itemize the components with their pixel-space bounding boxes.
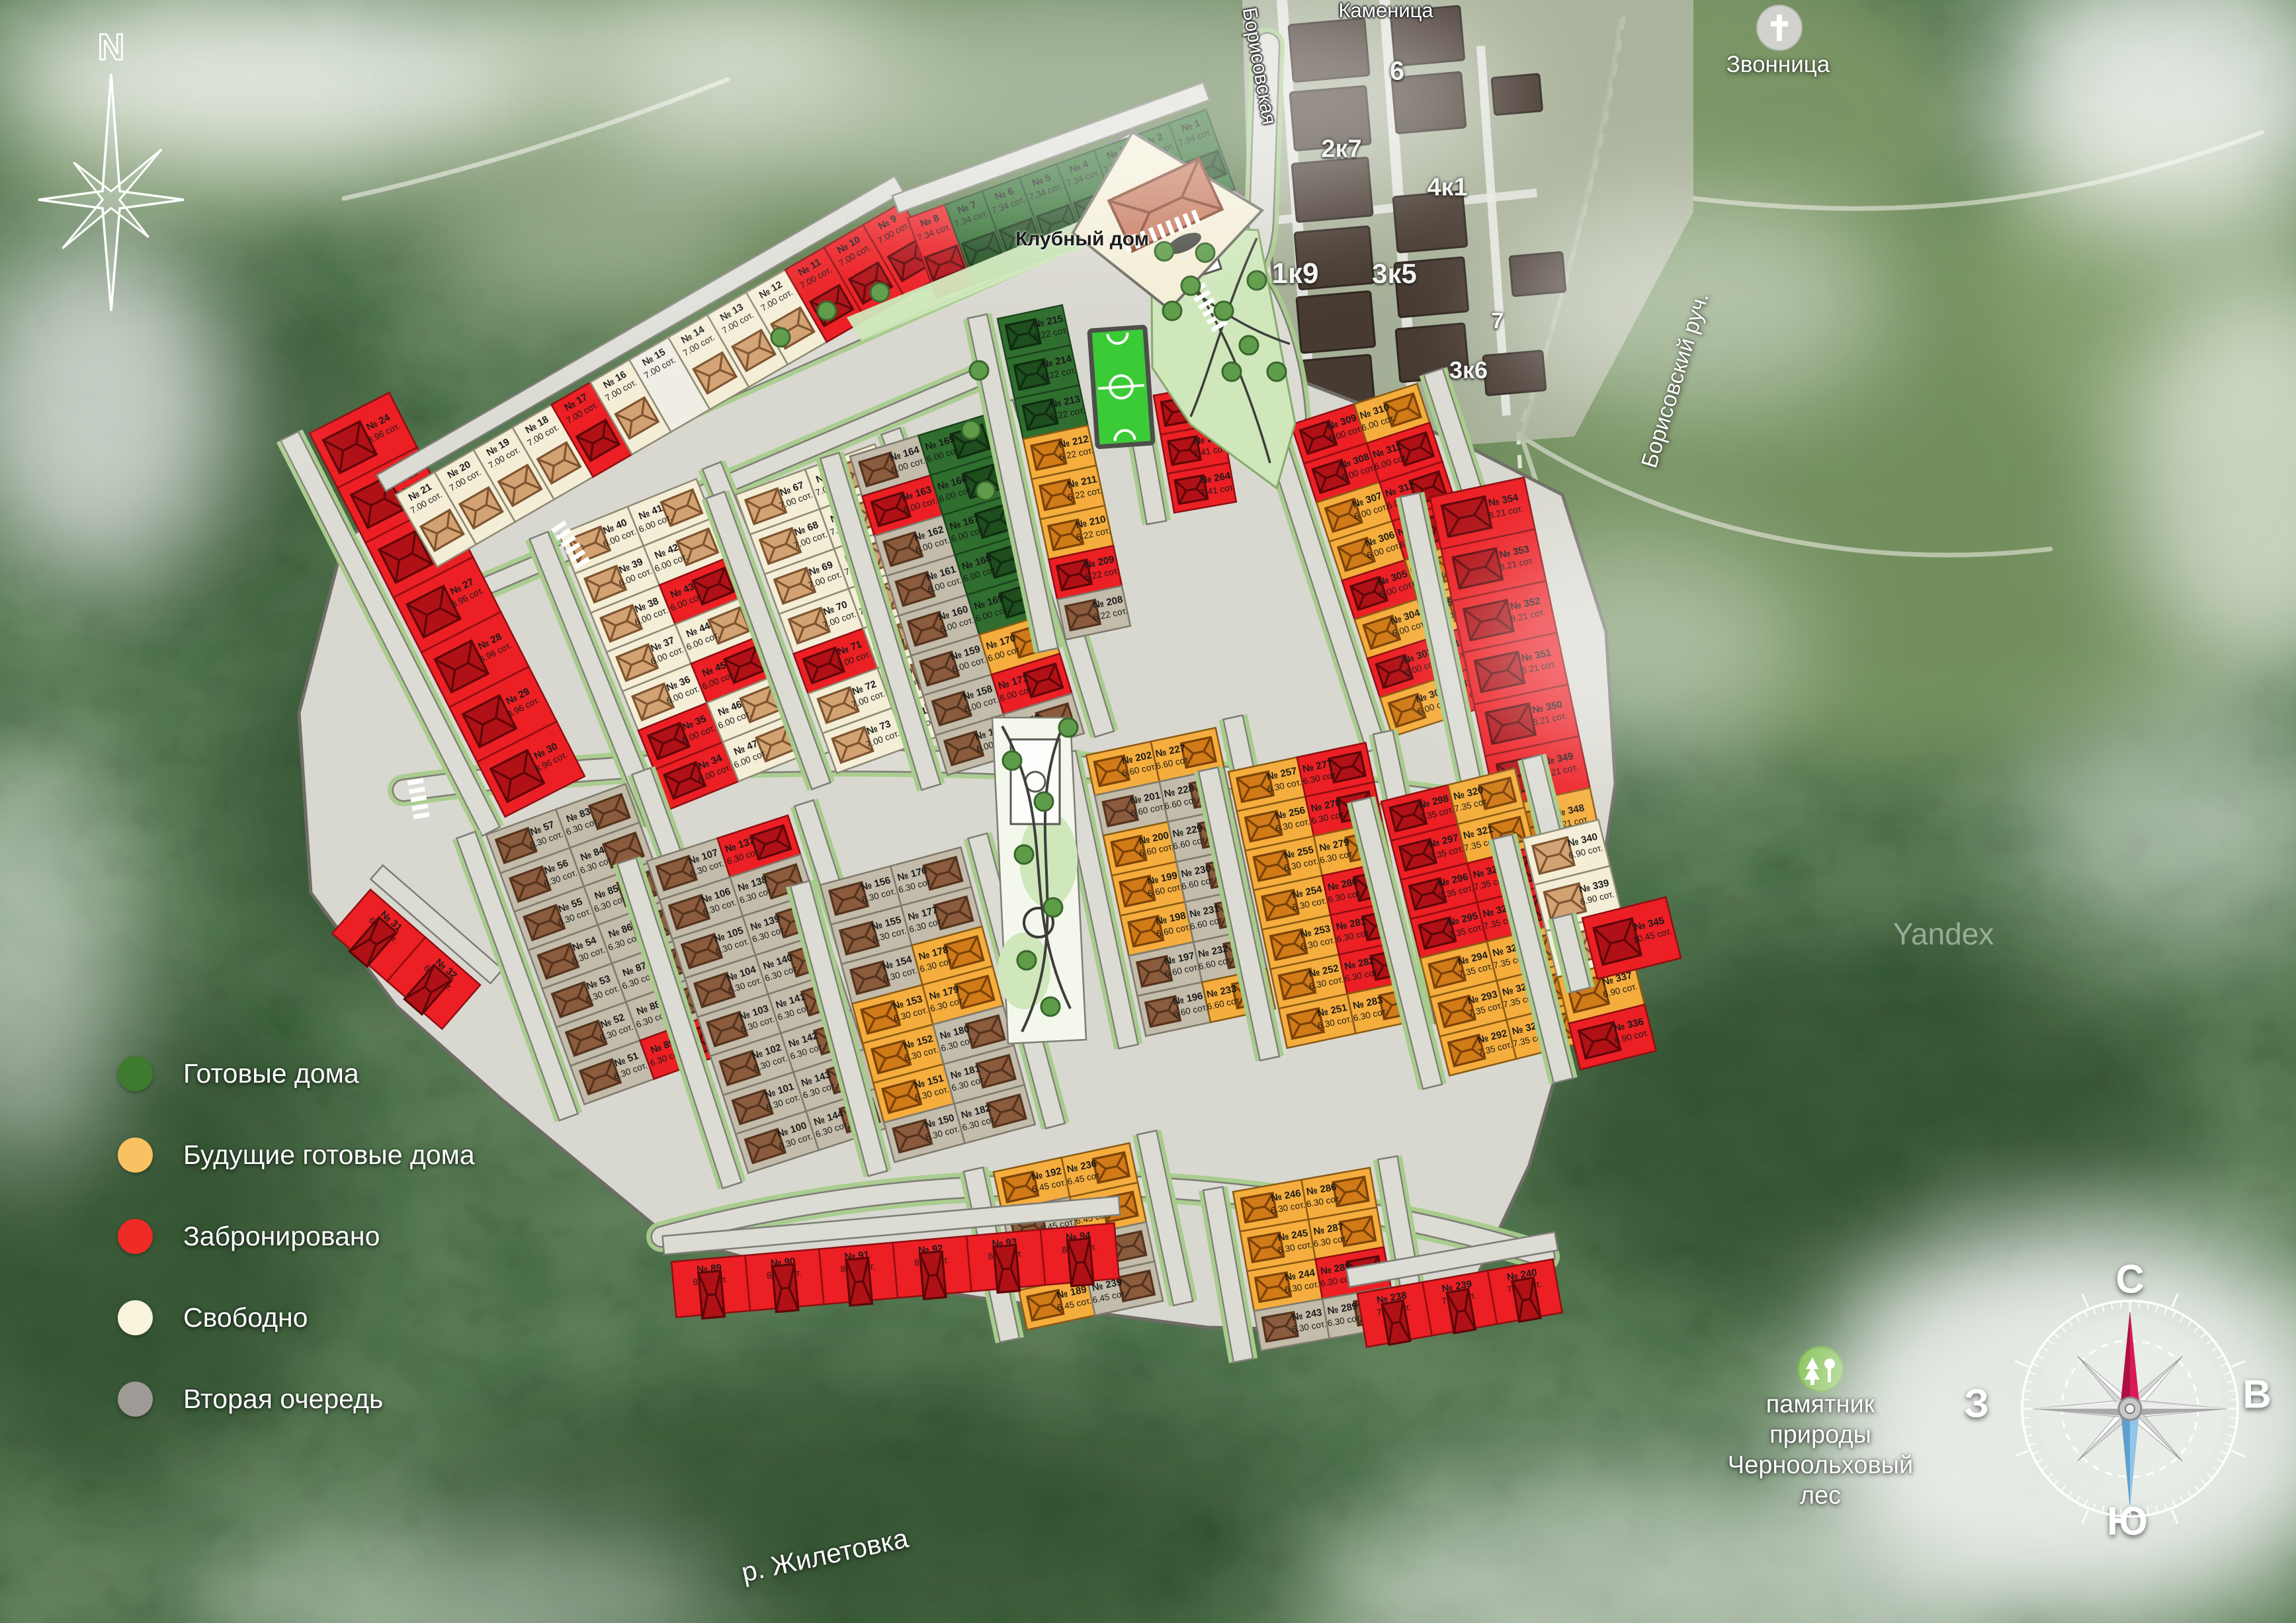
svg-text:N: N xyxy=(98,26,124,67)
tree-icon xyxy=(1015,845,1033,864)
legend-item-R: Забронировано xyxy=(118,1218,475,1254)
tree-icon xyxy=(962,421,980,439)
tree-icon xyxy=(1248,271,1266,290)
tree-icon xyxy=(1267,362,1286,381)
legend-dot xyxy=(118,1382,153,1417)
legend-label: Свободно xyxy=(183,1302,308,1333)
legend-dot xyxy=(118,1219,153,1254)
tree-icon xyxy=(1035,792,1053,811)
legend-item-C: Свободно xyxy=(118,1300,475,1335)
tree-icon xyxy=(871,283,889,302)
tree-icon xyxy=(1181,276,1200,295)
legend-label: Вторая очередь xyxy=(183,1384,383,1415)
church-icon xyxy=(1757,5,1802,50)
tree-icon xyxy=(1196,243,1214,262)
legend-item-O: Будущие готовые дома xyxy=(118,1137,475,1173)
tree-icon xyxy=(771,328,790,347)
tree-icon xyxy=(1155,242,1173,261)
town-building xyxy=(1295,226,1374,290)
tree-icon xyxy=(970,361,988,380)
house-icon xyxy=(1068,1239,1094,1286)
legend-dot xyxy=(118,1300,153,1335)
tree-icon xyxy=(1003,751,1021,770)
tree-icon xyxy=(818,302,836,320)
legend-label: Готовые дома xyxy=(183,1058,359,1089)
tree-icon xyxy=(1041,997,1060,1016)
legend-label: Забронировано xyxy=(183,1221,380,1252)
masterplan-canvas[interactable]: № 248.96 сот.№ 258.96 сот.№ 268.96 сот.№… xyxy=(0,0,2296,1623)
legend: Готовые домаБудущие готовые домаЗабронир… xyxy=(118,1056,475,1462)
tree-icon xyxy=(1059,718,1078,737)
legend-dot xyxy=(118,1138,153,1173)
house-icon xyxy=(699,1270,725,1318)
house-icon xyxy=(920,1251,947,1299)
tree-icon xyxy=(1163,302,1181,320)
legend-item-G: Готовые дома xyxy=(118,1056,475,1091)
house-icon xyxy=(994,1245,1020,1292)
football-field xyxy=(1089,327,1153,446)
compass-rose-icon xyxy=(1971,1243,2295,1584)
town-building xyxy=(1393,191,1467,253)
tree-icon xyxy=(1240,336,1258,354)
legend-dot xyxy=(118,1056,153,1091)
compass-north-icon: N xyxy=(26,20,198,334)
tree-icon xyxy=(976,481,995,500)
legend-label: Будущие готовые дома xyxy=(183,1140,475,1171)
tree-icon xyxy=(1044,898,1062,917)
tree-icon xyxy=(1017,951,1036,970)
house-icon xyxy=(772,1265,798,1312)
house-icon xyxy=(846,1258,872,1306)
tree-icon xyxy=(1214,302,1233,320)
tree-icon xyxy=(1222,362,1241,381)
town-building xyxy=(1394,257,1468,317)
town-building xyxy=(1297,291,1375,353)
legend-item-S: Вторая очередь xyxy=(118,1381,475,1417)
